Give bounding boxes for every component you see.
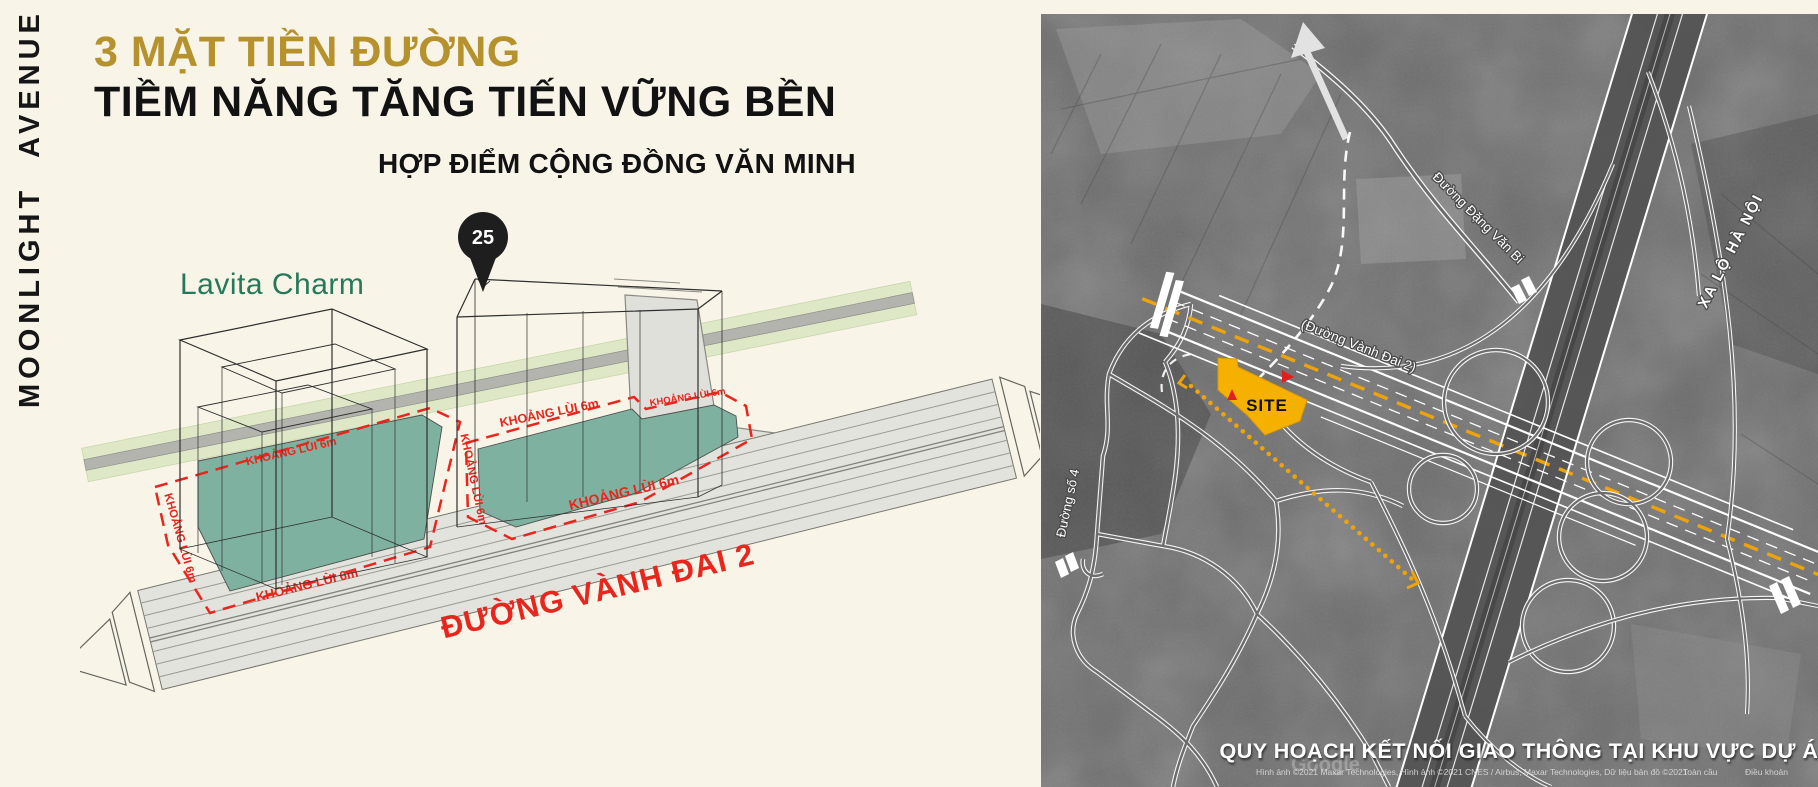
slide: MOONLIGHT AVENUE 3 MẶT TIỀN ĐƯỜNG TIỀM N… — [0, 0, 1818, 787]
map-attribution-link-dieu-khoan[interactable]: Điều khoản — [1745, 767, 1788, 777]
map-attribution-credits: Hình ảnh ©2021 Maxar Technologies, Hình … — [1256, 767, 1688, 777]
site-setback-diagram: KHOẢNG LÙI 6m KHOẢNG LÙI 6m KHOẢNG LÙI 6… — [80, 197, 1040, 787]
brand-vertical-title: MOONLIGHT AVENUE — [14, 26, 62, 408]
pin-value: 25 — [472, 227, 494, 249]
sub-headline: HỢP ĐIỂM CỘNG ĐỒNG VĂN MINH — [378, 148, 856, 180]
headline-black: TIỀM NĂNG TĂNG TIẾN VỮNG BỀN — [94, 78, 836, 127]
site-label: SITE — [1246, 396, 1288, 415]
map-caption: QUY HOẠCH KẾT NỐI GIAO THÔNG TẠI KHU VỰC… — [1220, 737, 1818, 763]
neighbor-project-label: Lavita Charm — [180, 268, 364, 301]
headline-gold: 3 MẶT TIỀN ĐƯỜNG — [94, 28, 521, 77]
map-attribution-link-toan-cau[interactable]: Toàn cầu — [1683, 767, 1718, 777]
satellite-map[interactable]: SITE (Đường Vành Đai 2) Đường Đặng Văn B… — [1041, 14, 1818, 787]
